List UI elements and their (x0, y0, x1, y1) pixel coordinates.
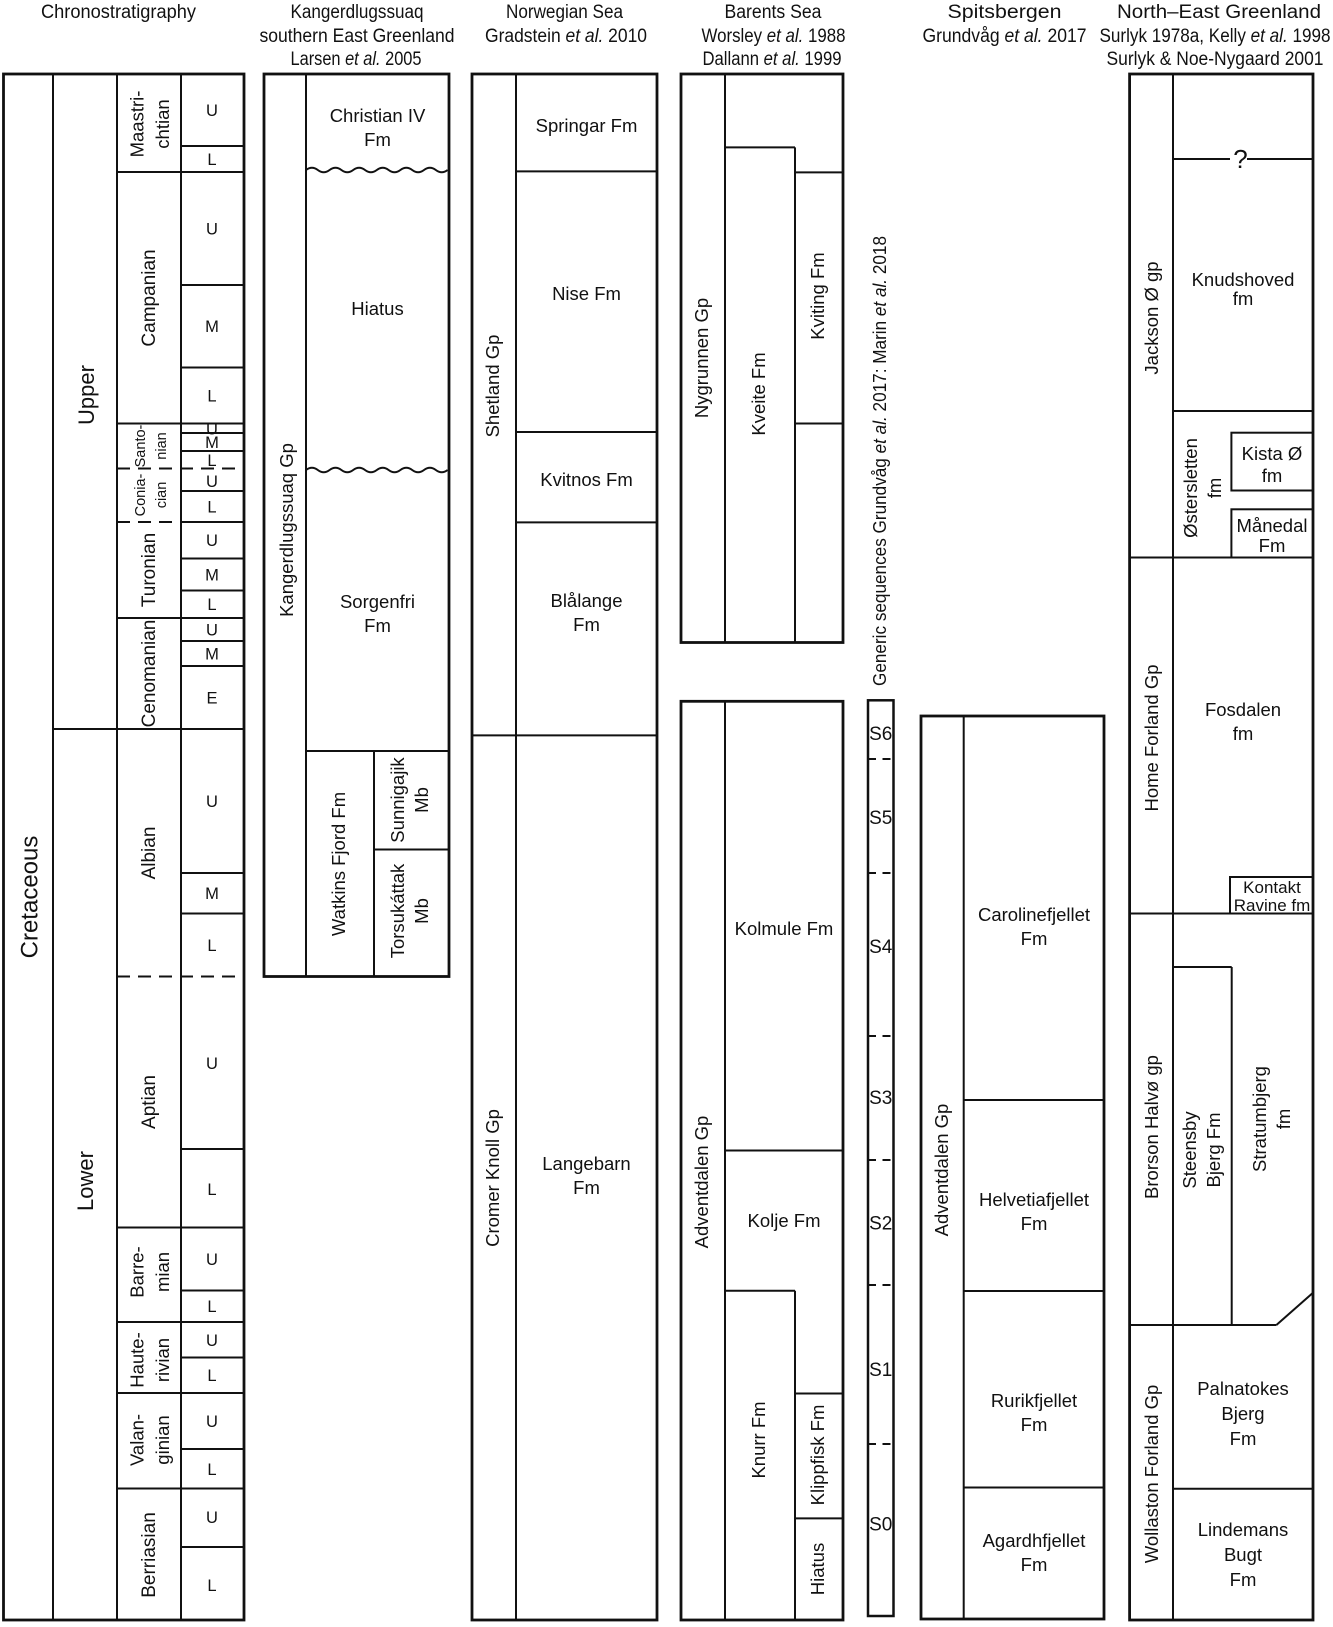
svg-text:Upper: Upper (74, 365, 99, 425)
svg-text:Wollaston Forland Gp: Wollaston Forland Gp (1141, 1385, 1162, 1564)
svg-text:L: L (207, 388, 216, 406)
svg-text:nian: nian (154, 432, 170, 459)
svg-text:Cenomanian: Cenomanian (139, 620, 160, 728)
svg-text:Fosdalen: Fosdalen (1205, 699, 1281, 720)
svg-text:U: U (206, 622, 218, 640)
svg-text:Fm: Fm (573, 614, 600, 635)
svg-text:U: U (206, 473, 218, 491)
svg-text:M: M (205, 646, 219, 664)
svg-text:Østersletten: Østersletten (1180, 438, 1201, 538)
svg-text:Fm: Fm (1021, 1554, 1048, 1575)
svg-text:Steensby: Steensby (1179, 1111, 1200, 1189)
svg-text:Kista Ø: Kista Ø (1242, 443, 1303, 464)
svg-text:U: U (206, 1413, 218, 1431)
svg-text:Kolmule Fm: Kolmule Fm (735, 918, 834, 939)
svg-text:Helvetiafjellet: Helvetiafjellet (979, 1189, 1089, 1210)
svg-text:Turonian: Turonian (139, 533, 160, 607)
svg-text:U: U (206, 532, 218, 550)
svg-text:Kangerdlugssuaq Gp: Kangerdlugssuaq Gp (276, 443, 297, 617)
svg-text:Grundvåg et al. 2017: Grundvåg et al. 2017 (923, 26, 1087, 47)
svg-text:E: E (206, 690, 217, 708)
svg-text:Lindemans: Lindemans (1198, 1519, 1289, 1540)
svg-text:M: M (205, 567, 219, 585)
svg-text:fm: fm (1262, 465, 1283, 486)
svg-text:Nise Fm: Nise Fm (552, 283, 621, 304)
svg-text:Surlyk & Noe-Nygaard 2001: Surlyk & Noe-Nygaard 2001 (1107, 49, 1324, 70)
svg-text:Valan-: Valan- (127, 1414, 148, 1466)
svg-text:Carolinefjellet: Carolinefjellet (978, 904, 1090, 925)
svg-text:?: ? (1233, 144, 1247, 174)
svg-text:Nygrunnen Gp: Nygrunnen Gp (691, 298, 712, 418)
svg-text:S0: S0 (869, 1515, 892, 1536)
svg-text:L: L (207, 499, 216, 517)
svg-text:L: L (207, 596, 216, 614)
svg-text:Bjerg: Bjerg (1221, 1403, 1264, 1424)
svg-text:U: U (206, 1509, 218, 1527)
svg-text:Rurikfjellet: Rurikfjellet (991, 1390, 1077, 1411)
svg-text:Kangerdlugssuaq: Kangerdlugssuaq (291, 2, 424, 23)
svg-text:ginian: ginian (152, 1415, 173, 1464)
svg-text:L: L (207, 937, 216, 955)
svg-text:Fm: Fm (364, 615, 391, 636)
svg-text:L: L (207, 1461, 216, 1479)
svg-text:U: U (206, 102, 218, 120)
svg-text:Generic sequences Grundvåg et: Generic sequences Grundvåg et al. 2017: … (869, 236, 890, 686)
svg-text:Fm: Fm (1230, 1428, 1257, 1449)
svg-text:Santo-: Santo- (133, 424, 149, 467)
svg-text:Haute-: Haute- (127, 1332, 148, 1388)
svg-text:Palnatokes: Palnatokes (1197, 1378, 1289, 1399)
svg-text:Aptian: Aptian (139, 1075, 160, 1129)
svg-text:Jackson Ø gp: Jackson Ø gp (1141, 261, 1162, 374)
svg-text:L: L (207, 1298, 216, 1316)
svg-text:Fm: Fm (573, 1177, 600, 1198)
svg-text:Cretaceous: Cretaceous (17, 836, 44, 959)
svg-text:S1: S1 (869, 1360, 892, 1381)
svg-text:Hiatus: Hiatus (807, 1543, 828, 1595)
svg-text:Fm: Fm (1021, 928, 1048, 949)
svg-text:cian: cian (154, 482, 170, 509)
svg-text:Watkins Fjord Fm: Watkins Fjord Fm (328, 792, 349, 936)
svg-text:S2: S2 (869, 1214, 892, 1235)
svg-text:U: U (206, 1332, 218, 1350)
svg-text:chtian: chtian (152, 99, 173, 148)
svg-text:Mb: Mb (411, 787, 432, 813)
svg-text:fm: fm (1273, 1109, 1294, 1130)
svg-text:Langebarn: Langebarn (542, 1153, 630, 1174)
svg-text:Larsen et al. 2005: Larsen et al. 2005 (291, 49, 422, 70)
svg-text:U: U (206, 1251, 218, 1269)
svg-text:fm: fm (1233, 288, 1254, 309)
svg-text:Surlyk 1978a, Kelly et al. 199: Surlyk 1978a, Kelly et al. 1998 (1100, 26, 1331, 47)
svg-text:Ravine fm: Ravine fm (1234, 896, 1311, 915)
svg-text:Sorgenfri: Sorgenfri (340, 591, 415, 612)
svg-text:Home Forland Gp: Home Forland Gp (1141, 664, 1162, 811)
svg-text:Maastri-: Maastri- (127, 91, 148, 158)
svg-text:fm: fm (1233, 723, 1254, 744)
svg-text:M: M (205, 434, 219, 452)
svg-text:Chronostratigraphy: Chronostratigraphy (41, 2, 196, 23)
svg-text:M: M (205, 318, 219, 336)
svg-text:southern East Greenland: southern East Greenland (260, 26, 455, 47)
svg-text:Bjerg Fm: Bjerg Fm (1203, 1112, 1224, 1187)
svg-text:Christian IV: Christian IV (330, 105, 426, 126)
svg-text:L: L (207, 1367, 216, 1385)
svg-text:Kveite Fm: Kveite Fm (748, 352, 769, 435)
svg-text:L: L (207, 151, 216, 169)
svg-text:L: L (207, 1181, 216, 1199)
svg-text:M: M (205, 885, 219, 903)
svg-text:Adventdalen Gp: Adventdalen Gp (691, 1116, 712, 1249)
svg-text:Barre-: Barre- (127, 1246, 148, 1297)
svg-text:Månedal: Månedal (1237, 515, 1308, 536)
svg-text:North–East Greenland: North–East Greenland (1117, 2, 1321, 23)
svg-text:Mb: Mb (411, 898, 432, 924)
svg-text:Fm: Fm (1021, 1213, 1048, 1234)
svg-text:Agardhfjellet: Agardhfjellet (983, 1530, 1086, 1551)
svg-text:Kvitnos Fm: Kvitnos Fm (540, 469, 633, 490)
svg-text:Albian: Albian (139, 827, 160, 880)
svg-text:fm: fm (1204, 478, 1225, 499)
svg-text:U: U (206, 221, 218, 239)
svg-text:Cromer Knoll Gp: Cromer Knoll Gp (482, 1109, 503, 1247)
svg-text:S6: S6 (869, 724, 892, 745)
svg-text:Norwegian Sea: Norwegian Sea (506, 2, 623, 23)
svg-text:Gradstein et al. 2010: Gradstein et al. 2010 (485, 26, 647, 47)
svg-text:Kolje Fm: Kolje Fm (748, 1210, 821, 1231)
svg-text:L: L (207, 452, 216, 470)
svg-text:Campanian: Campanian (139, 249, 160, 346)
svg-text:U: U (206, 1055, 218, 1073)
svg-text:Torsukáttak: Torsukáttak (387, 863, 408, 958)
svg-text:Berriasian: Berriasian (139, 1512, 160, 1598)
svg-text:U: U (206, 793, 218, 811)
svg-text:S4: S4 (869, 937, 893, 958)
svg-text:Springar Fm: Springar Fm (536, 115, 638, 136)
svg-text:rivian: rivian (152, 1338, 173, 1382)
svg-text:Klippfisk Fm: Klippfisk Fm (807, 1405, 828, 1506)
svg-text:Fm: Fm (1021, 1414, 1048, 1435)
svg-text:Lower: Lower (73, 1151, 98, 1211)
svg-text:Fm: Fm (364, 129, 391, 150)
svg-text:S5: S5 (869, 808, 892, 829)
svg-text:Shetland Gp: Shetland Gp (482, 335, 503, 438)
svg-text:Bugt: Bugt (1224, 1544, 1262, 1565)
svg-text:Fm: Fm (1259, 535, 1286, 556)
svg-text:Conia-: Conia- (133, 473, 149, 516)
svg-text:Blålange: Blålange (550, 590, 622, 611)
svg-text:S3: S3 (869, 1088, 892, 1109)
svg-text:Hiatus: Hiatus (351, 298, 403, 319)
svg-text:Worsley et al. 1988: Worsley et al. 1988 (702, 26, 846, 47)
svg-text:Fm: Fm (1230, 1569, 1257, 1590)
svg-text:Sunnigajik: Sunnigajik (387, 757, 408, 843)
svg-text:L: L (207, 1577, 216, 1595)
svg-text:mian: mian (152, 1252, 173, 1292)
svg-text:Kontakt: Kontakt (1243, 878, 1301, 897)
svg-text:Dallann et al. 1999: Dallann et al. 1999 (703, 49, 842, 70)
svg-text:Barents Sea: Barents Sea (725, 2, 822, 23)
svg-text:Spitsbergen: Spitsbergen (948, 2, 1062, 23)
svg-text:Knudshoved: Knudshoved (1192, 269, 1295, 290)
svg-text:Kviting Fm: Kviting Fm (807, 252, 828, 339)
svg-text:Stratumbjerg: Stratumbjerg (1249, 1066, 1270, 1172)
svg-text:Knurr Fm: Knurr Fm (748, 1401, 769, 1478)
svg-text:Brorson Halvø gp: Brorson Halvø gp (1141, 1055, 1162, 1199)
svg-text:Adventdalen Gp: Adventdalen Gp (931, 1104, 952, 1237)
